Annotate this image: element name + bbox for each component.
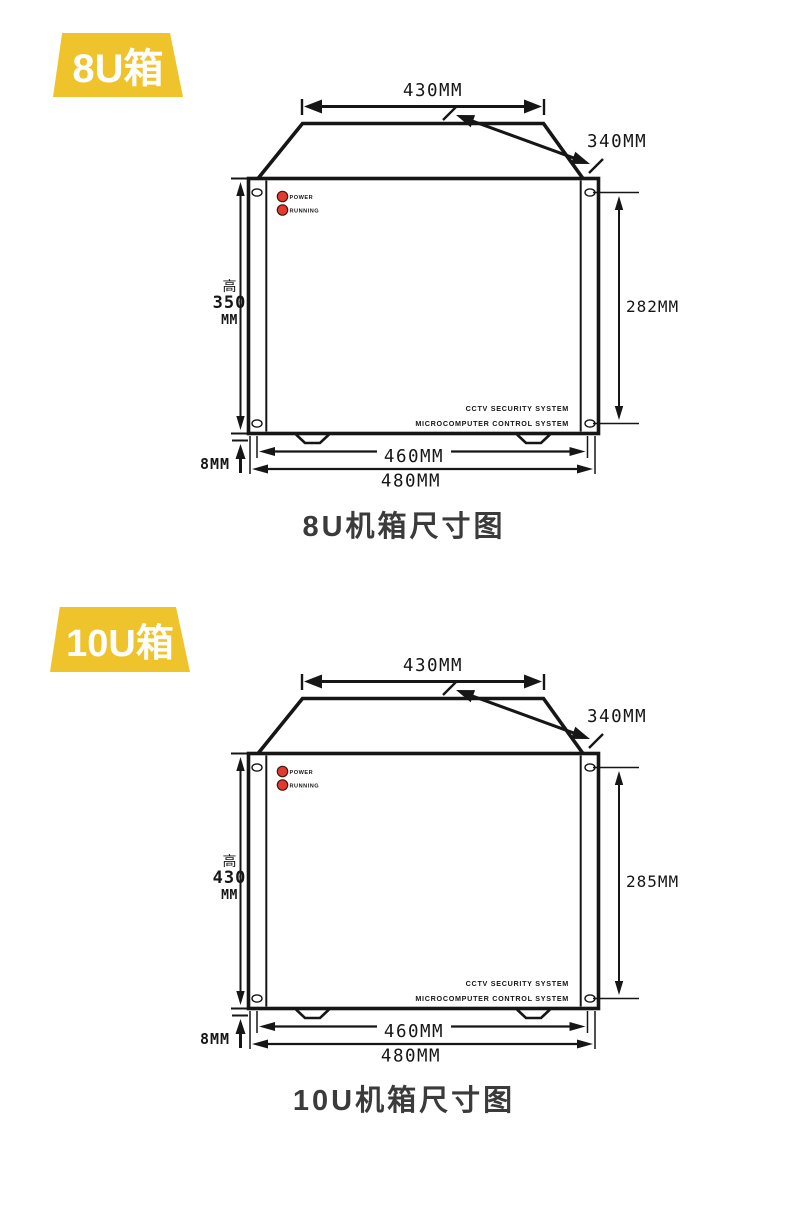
brand-line1: CCTV SECURITY SYSTEM [466,979,569,988]
height-prefix-label: 高 [223,853,237,869]
dim-arrowhead [577,465,593,474]
height-prefix-label: 高 [223,278,237,294]
chassis-front-panel: POWER RUNNING CCTV SECURITY SYSTEM MICRO… [249,179,599,444]
mount-height-dimension: 285MM [593,768,679,999]
height-value-label: 430 [213,868,247,888]
height-value-label: 350 [213,293,247,313]
dim-arrowhead [252,1040,268,1049]
chassis-diagram-8u: 430MM 340MM POWER RUNNING CCTV SECUR [190,75,700,490]
top-width-dimension: 430MM [302,81,544,115]
dim-tick [443,681,457,695]
dim-tick [589,734,603,748]
dim-arrowhead [571,152,590,164]
chassis-foot [517,435,550,444]
dim-arrowhead [236,444,246,459]
inner-width-label: 460MM [384,447,444,467]
power-led-label: POWER [290,770,314,776]
mount-height-dimension: 282MM [593,193,679,424]
dim-tick [589,159,603,173]
dim-arrowhead [570,447,586,456]
dim-arrowhead [236,757,244,771]
mount-height-label: 282MM [626,297,679,316]
dim-arrowhead [615,771,623,785]
brand-line2: MICROCOMPUTER CONTROL SYSTEM [415,419,569,428]
chassis-front-panel: POWER RUNNING CCTV SECURITY SYSTEM MICRO… [249,754,599,1019]
chassis-foot [517,1010,550,1019]
dim-arrowhead [236,416,244,430]
running-led [277,780,287,790]
outer-width-label: 480MM [381,1047,441,1066]
dim-arrowhead [615,981,623,995]
chassis-top-outline [258,124,583,179]
front-panel-outline [249,754,599,1009]
screw-hole [252,764,262,771]
badge-10u-label: 10U箱 [66,612,174,667]
inner-width-label: 460MM [384,1022,444,1042]
screw-hole [252,420,262,427]
chassis-top-outline [258,699,583,754]
foot-height-dimension: 8MM [200,1016,248,1049]
dim-arrowhead [524,100,542,114]
top-width-dimension: 430MM [302,656,544,690]
dim-arrowhead [615,406,623,420]
height-unit-label: MM [221,313,238,328]
dim-arrowhead [236,1019,246,1034]
dim-arrowhead [236,182,244,196]
outer-width-label: 480MM [381,472,441,491]
caption-8u: 8U机箱尺寸图 [0,503,790,545]
power-led-label: POWER [290,195,314,201]
badge-8u-label: 8U箱 [72,36,163,94]
top-width-label: 430MM [403,656,463,676]
brand-line2: MICROCOMPUTER CONTROL SYSTEM [415,994,569,1003]
chassis-foot [296,1010,329,1019]
dim-arrowhead [304,675,322,689]
foot-height-label: 8MM [200,1030,230,1048]
dim-arrowhead [236,991,244,1005]
dim-arrowhead [570,1022,586,1031]
brand-line1: CCTV SECURITY SYSTEM [466,404,569,413]
dim-arrowhead [259,447,275,456]
chassis-diagram-10u: 430MM 340MM POWER RUNNING CCTV SECUR [190,650,700,1065]
depth-label: 340MM [587,132,647,152]
badge-8u: 8U箱 [53,33,183,97]
power-led [277,191,287,201]
dim-arrowhead [615,196,623,210]
foot-height-dimension: 8MM [200,441,248,474]
badge-10u: 10U箱 [50,607,190,672]
dim-arrowhead [259,1022,275,1031]
screw-hole [252,189,262,196]
dim-tick [443,106,457,120]
height-dimension: 高 350 MM [213,179,248,434]
depth-label: 340MM [587,707,647,727]
power-led [277,766,287,776]
dim-arrowhead [577,1040,593,1049]
height-unit-label: MM [221,888,238,903]
dim-arrowhead [304,100,322,114]
running-led [277,205,287,215]
height-dimension: 高 430 MM [213,754,248,1009]
dim-arrowhead [571,727,590,739]
front-panel-outline [249,179,599,434]
screw-hole [252,995,262,1002]
bottom-dimensions: 460MM 480MM [250,436,595,490]
bottom-dimensions: 460MM 480MM [250,1011,595,1065]
caption-10u: 10U机箱尺寸图 [0,1077,790,1119]
dim-arrowhead [252,465,268,474]
page: 8U箱 430MM 340MM [0,0,790,1225]
running-led-label: RUNNING [290,784,320,790]
mount-height-label: 285MM [626,872,679,891]
top-width-label: 430MM [403,81,463,101]
foot-height-label: 8MM [200,455,230,473]
chassis-foot [296,435,329,444]
dim-arrowhead [524,675,542,689]
running-led-label: RUNNING [290,209,320,215]
